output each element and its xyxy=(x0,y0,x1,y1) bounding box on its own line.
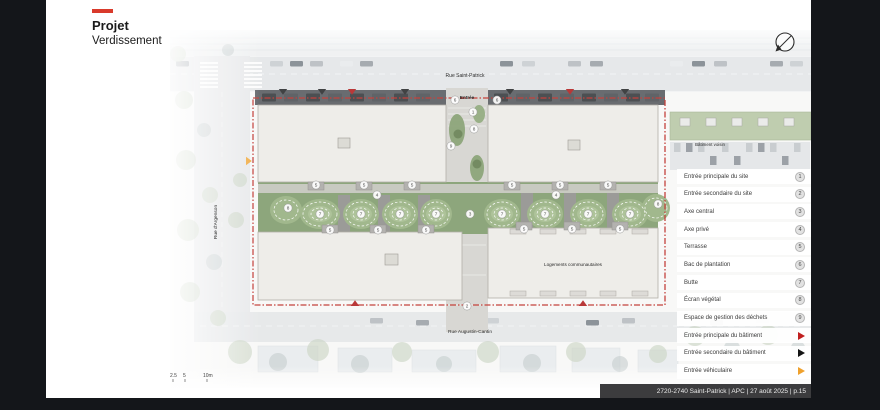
label-batiment-voisin: Bâtiment voisin xyxy=(695,142,725,147)
legend-number-badge: 8 xyxy=(795,295,805,305)
legend-item: Bac de plantation6 xyxy=(677,257,811,272)
legend-item: Entrée principale du bâtiment xyxy=(677,328,811,343)
legend-item: Axe privé4 xyxy=(677,222,811,237)
legend-item: Entrée secondaire du bâtiment xyxy=(677,346,811,361)
legend-item: Entrée secondaire du site2 xyxy=(677,187,811,202)
label-entree: Entrée xyxy=(460,95,475,100)
legend-arrow-icon xyxy=(798,367,805,375)
legend-item-label: Bac de plantation xyxy=(684,262,730,268)
footer-bar: 2720-2740 Saint-Patrick | APC | 27 août … xyxy=(600,384,811,398)
page-title: Projet xyxy=(92,18,162,33)
footer-text: 2720-2740 Saint-Patrick | APC | 27 août … xyxy=(657,388,806,395)
legend-number-badge: 6 xyxy=(795,260,805,270)
legend-item-label: Espace de gestion des déchets xyxy=(684,315,767,321)
legend-item-label: Axe privé xyxy=(684,227,709,233)
legend-item-label: Entrée principale du bâtiment xyxy=(684,333,762,339)
legend-number-badge: 4 xyxy=(795,225,805,235)
legend-number-badge: 7 xyxy=(795,278,805,288)
legend-item-label: Écran végétal xyxy=(684,297,721,303)
legend-item-label: Terrasse xyxy=(684,244,707,250)
label-rue-saint-patrick: Rue Saint-Patrick xyxy=(446,73,485,79)
legend-item: Espace de gestion des déchets9 xyxy=(677,311,811,326)
legend-number-badge: 2 xyxy=(795,189,805,199)
legend-item: Terrasse5 xyxy=(677,240,811,255)
legend-item-label: Axe central xyxy=(684,209,714,215)
legend-item: Butte7 xyxy=(677,275,811,290)
slide-page: Projet Verdissement xyxy=(46,0,811,398)
legend-item: Entrée véhiculaire xyxy=(677,364,811,379)
legend-number-badge: 3 xyxy=(795,207,805,217)
legend-number-badge: 9 xyxy=(795,313,805,323)
legend-item-label: Entrée principale du site xyxy=(684,174,748,180)
accent-dash xyxy=(92,9,113,13)
label-logements-communautaires: Logements communautaires xyxy=(544,262,603,267)
legend-arrow-icon xyxy=(798,349,805,357)
page-subtitle: Verdissement xyxy=(92,35,162,47)
legend-item-label: Entrée secondaire du bâtiment xyxy=(684,350,766,356)
legend-item-label: Butte xyxy=(684,280,698,286)
scale-tick-3: 10m xyxy=(203,373,213,379)
presentation-screen: { "slide": { "title": "Projet", "subtitl… xyxy=(0,0,880,410)
legend-item-label: Entrée secondaire du site xyxy=(684,191,752,197)
legend-arrow-icon xyxy=(798,332,805,340)
legend-number-badge: 1 xyxy=(795,172,805,182)
legend-item: Écran végétal8 xyxy=(677,293,811,308)
label-rue-augustin-cantin: Rue Augustin-Cantin xyxy=(448,329,492,335)
title-block: Projet Verdissement xyxy=(92,9,162,47)
legend-number-badge: 5 xyxy=(795,242,805,252)
legend-item: Axe central3 xyxy=(677,204,811,219)
legend-item-label: Entrée véhiculaire xyxy=(684,368,732,374)
north-arrow-icon xyxy=(776,33,795,52)
plan-legend: Entrée principale du site1Entrée seconda… xyxy=(677,169,811,379)
scale-tick-2: 5 xyxy=(183,373,186,379)
label-rue-argenson: Rue d'Argenson xyxy=(213,205,219,240)
scale-tick-1: 2.5 xyxy=(170,373,177,379)
legend-item: Entrée principale du site1 xyxy=(677,169,811,184)
